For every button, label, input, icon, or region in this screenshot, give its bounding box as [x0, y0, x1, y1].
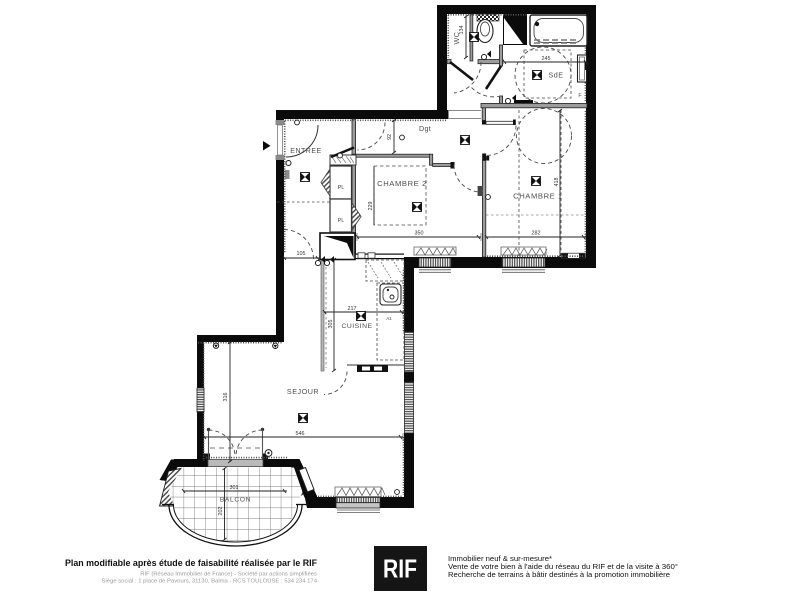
svg-text:134: 134 [459, 26, 465, 35]
svg-text:CHAMBRE 1: CHAMBRE 1 [513, 192, 563, 201]
svg-text:316: 316 [223, 393, 229, 402]
svg-text:546: 546 [296, 431, 305, 437]
svg-text:A1: A1 [386, 316, 392, 321]
svg-text:RIF (Réseau Immobilier de Fran: RIF (Réseau Immobilier de France) - Soci… [140, 572, 317, 578]
svg-text:105: 105 [297, 251, 306, 257]
svg-text:SEJOUR: SEJOUR [287, 387, 319, 396]
svg-text:CUISINE: CUISINE [341, 323, 372, 330]
svg-text:418: 418 [554, 178, 560, 187]
svg-text:ENTREE: ENTREE [290, 148, 321, 155]
svg-text:282: 282 [532, 231, 541, 237]
svg-text:Siège social : 1 place de Pavo: Siège social : 1 place de Pavours, 31130… [102, 579, 318, 585]
svg-text:PL: PL [338, 218, 345, 224]
svg-text:RIF: RIF [383, 554, 417, 584]
svg-text:350: 350 [415, 231, 424, 237]
svg-text:92: 92 [387, 134, 393, 140]
svg-text:245: 245 [542, 56, 551, 62]
svg-text:Recherche de terrains à bâtir: Recherche de terrains à bâtir destinés à… [448, 570, 670, 579]
svg-text:PL: PL [338, 185, 345, 191]
svg-text:SdE: SdE [548, 71, 563, 80]
svg-text:217: 217 [348, 306, 357, 312]
svg-text:BALCON: BALCON [220, 497, 251, 504]
svg-text:202: 202 [218, 507, 224, 516]
svg-text:305: 305 [328, 320, 334, 329]
svg-text:301: 301 [230, 485, 239, 491]
svg-text:229: 229 [368, 202, 374, 211]
svg-text:Plan modifiable après étude de: Plan modifiable après étude de faisabili… [65, 558, 317, 568]
svg-text:Dgt: Dgt [419, 124, 431, 133]
svg-text:CHAMBRE 2: CHAMBRE 2 [377, 179, 427, 188]
